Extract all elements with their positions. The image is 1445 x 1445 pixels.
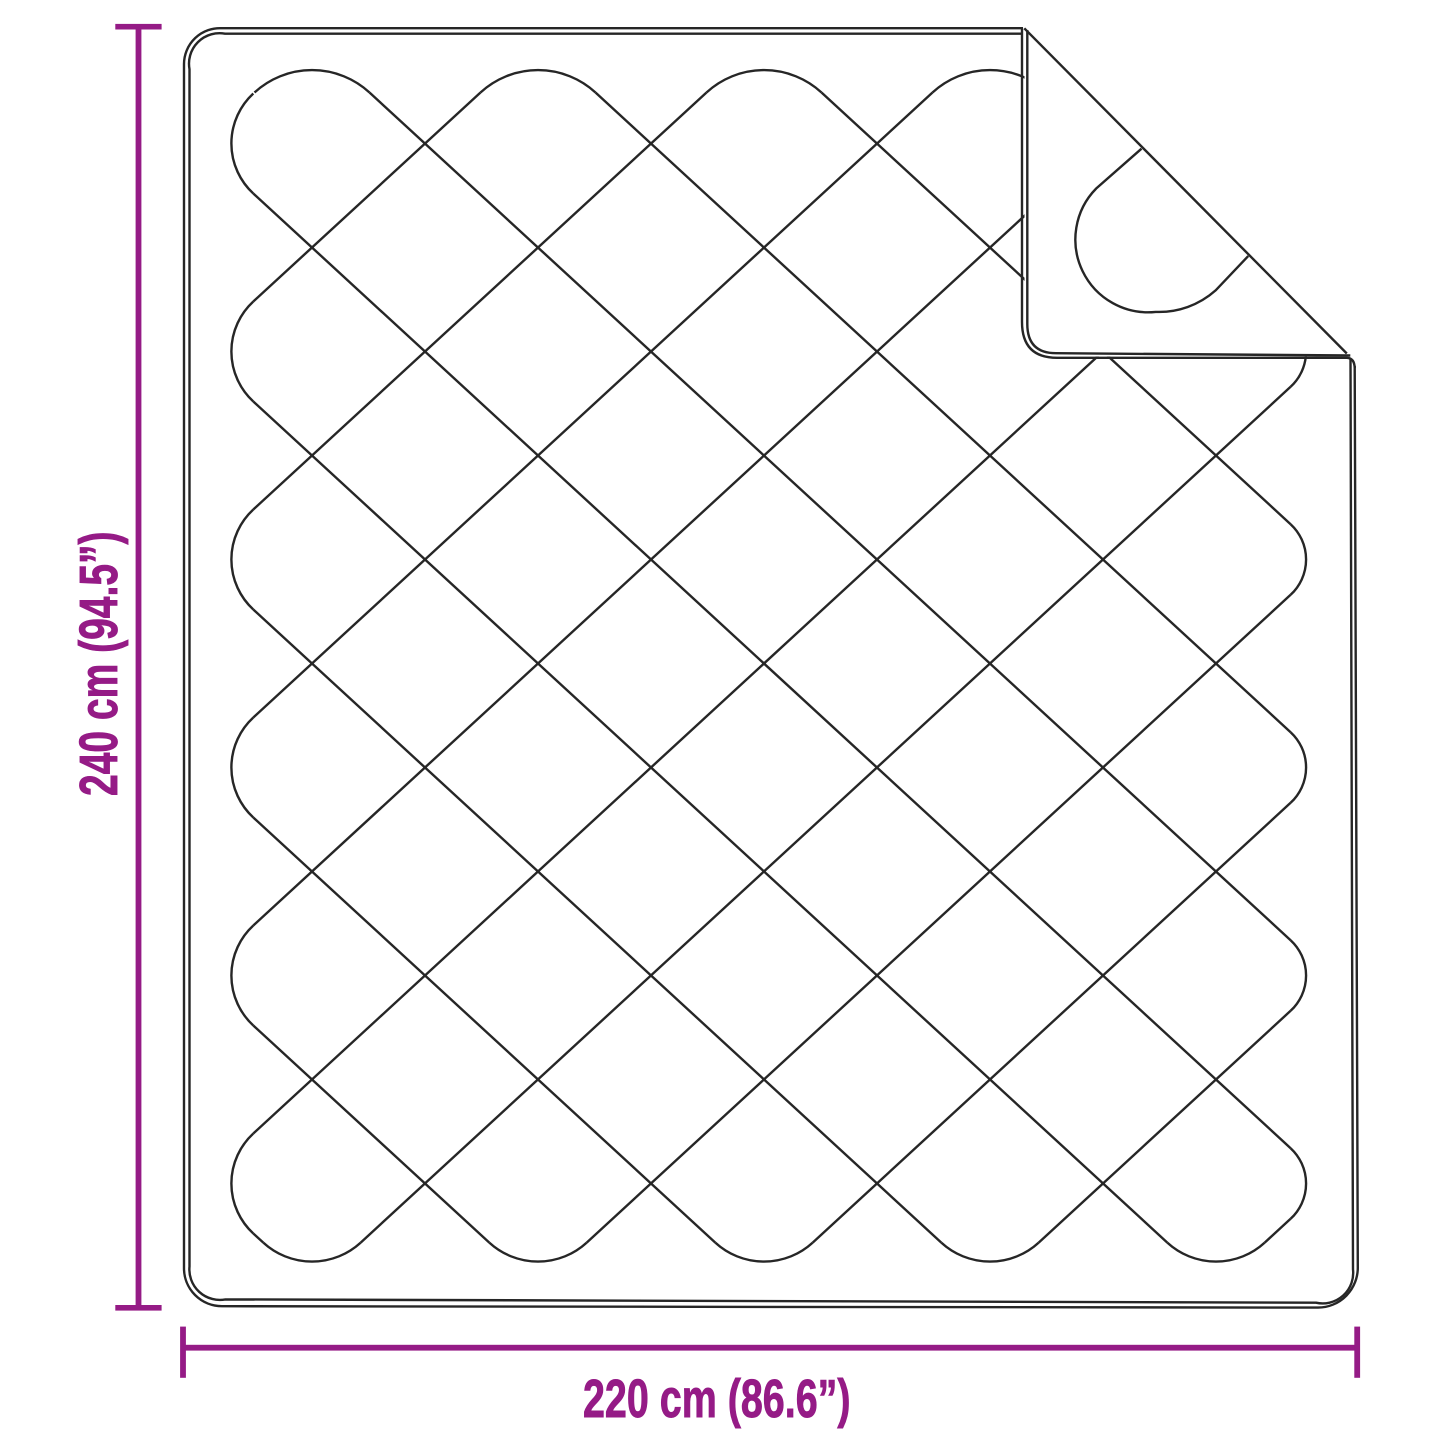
svg-text:220 cm (86.6”): 220 cm (86.6”)	[583, 1370, 851, 1429]
svg-text:240 cm (94.5”): 240 cm (94.5”)	[70, 532, 129, 797]
